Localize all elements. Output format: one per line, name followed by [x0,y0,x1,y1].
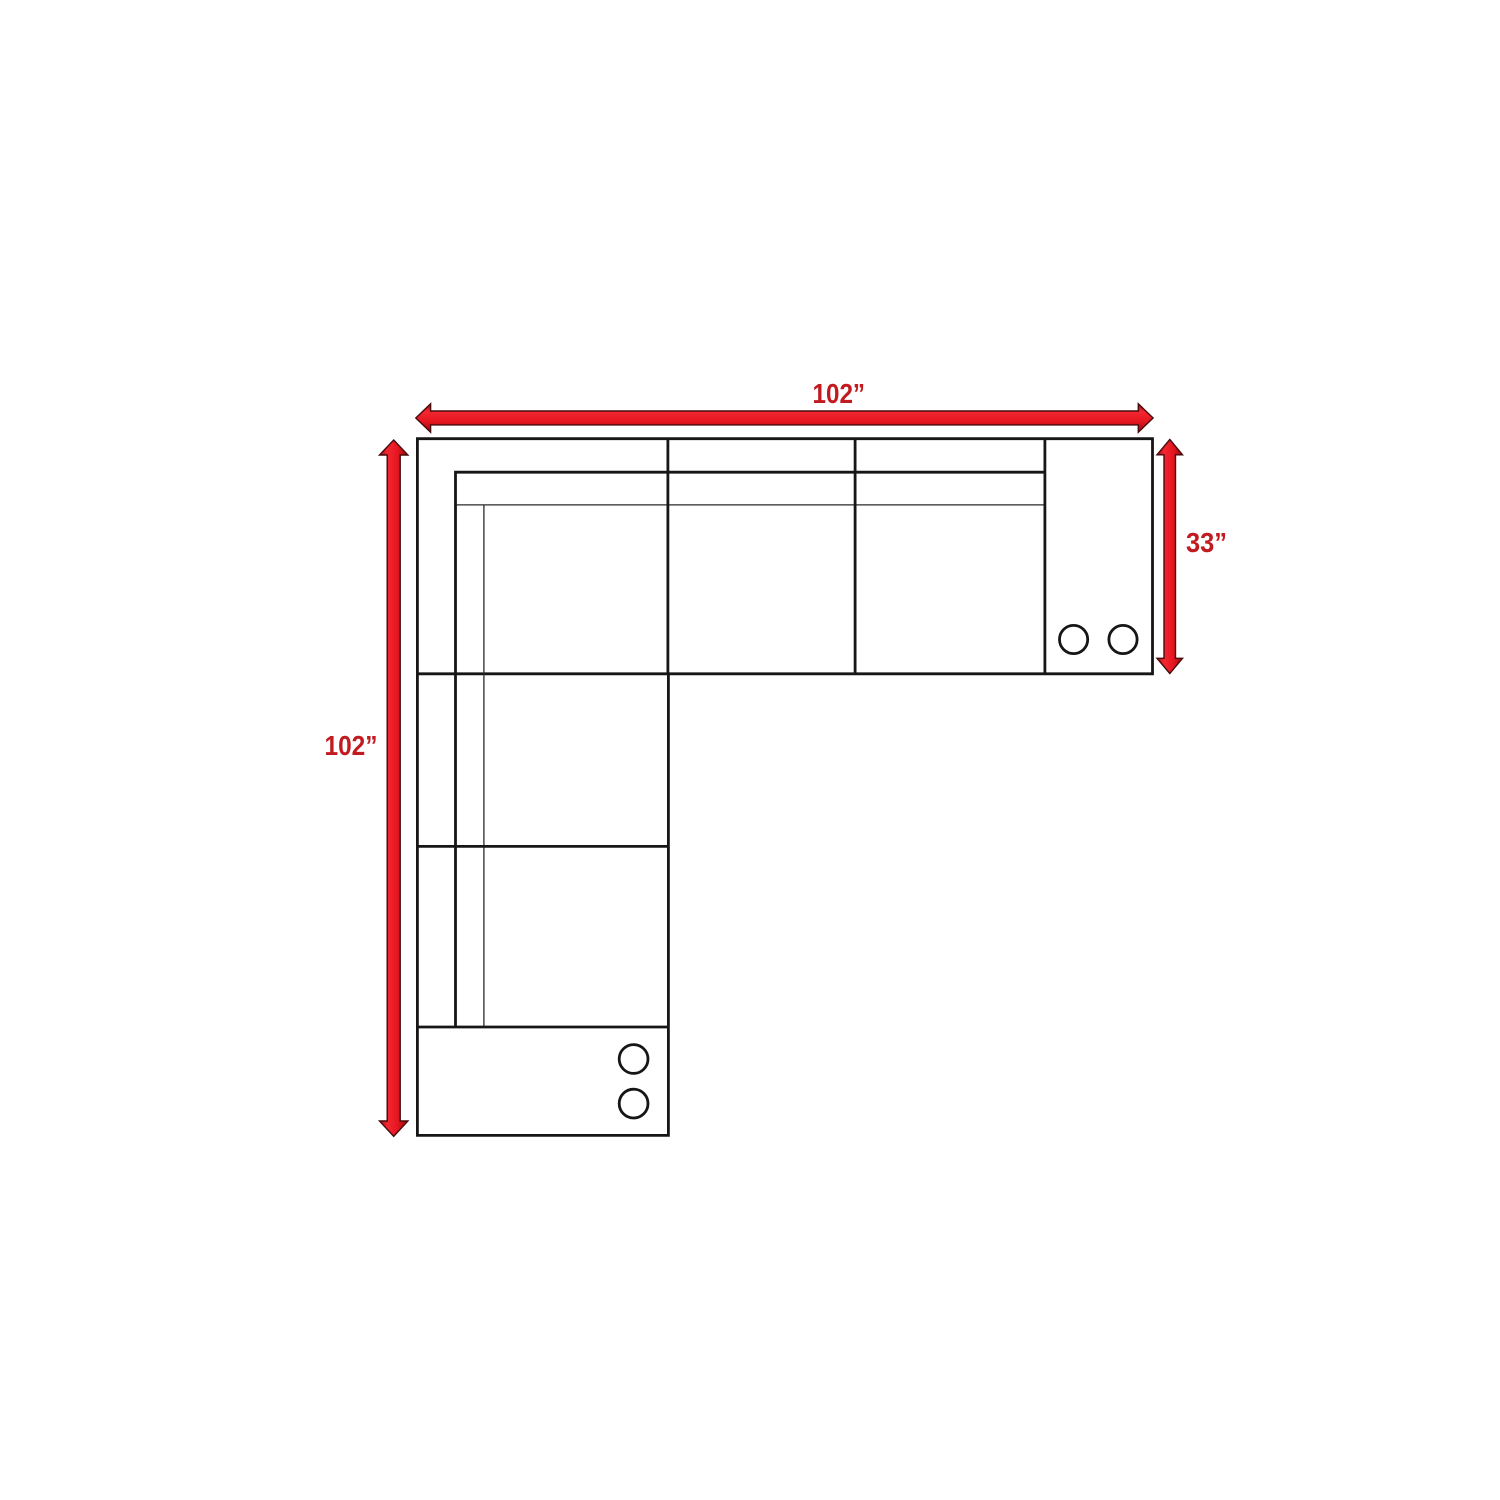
svg-text:102”: 102” [813,378,866,409]
svg-text:33”: 33” [1186,527,1227,558]
svg-text:102”: 102” [325,730,378,761]
